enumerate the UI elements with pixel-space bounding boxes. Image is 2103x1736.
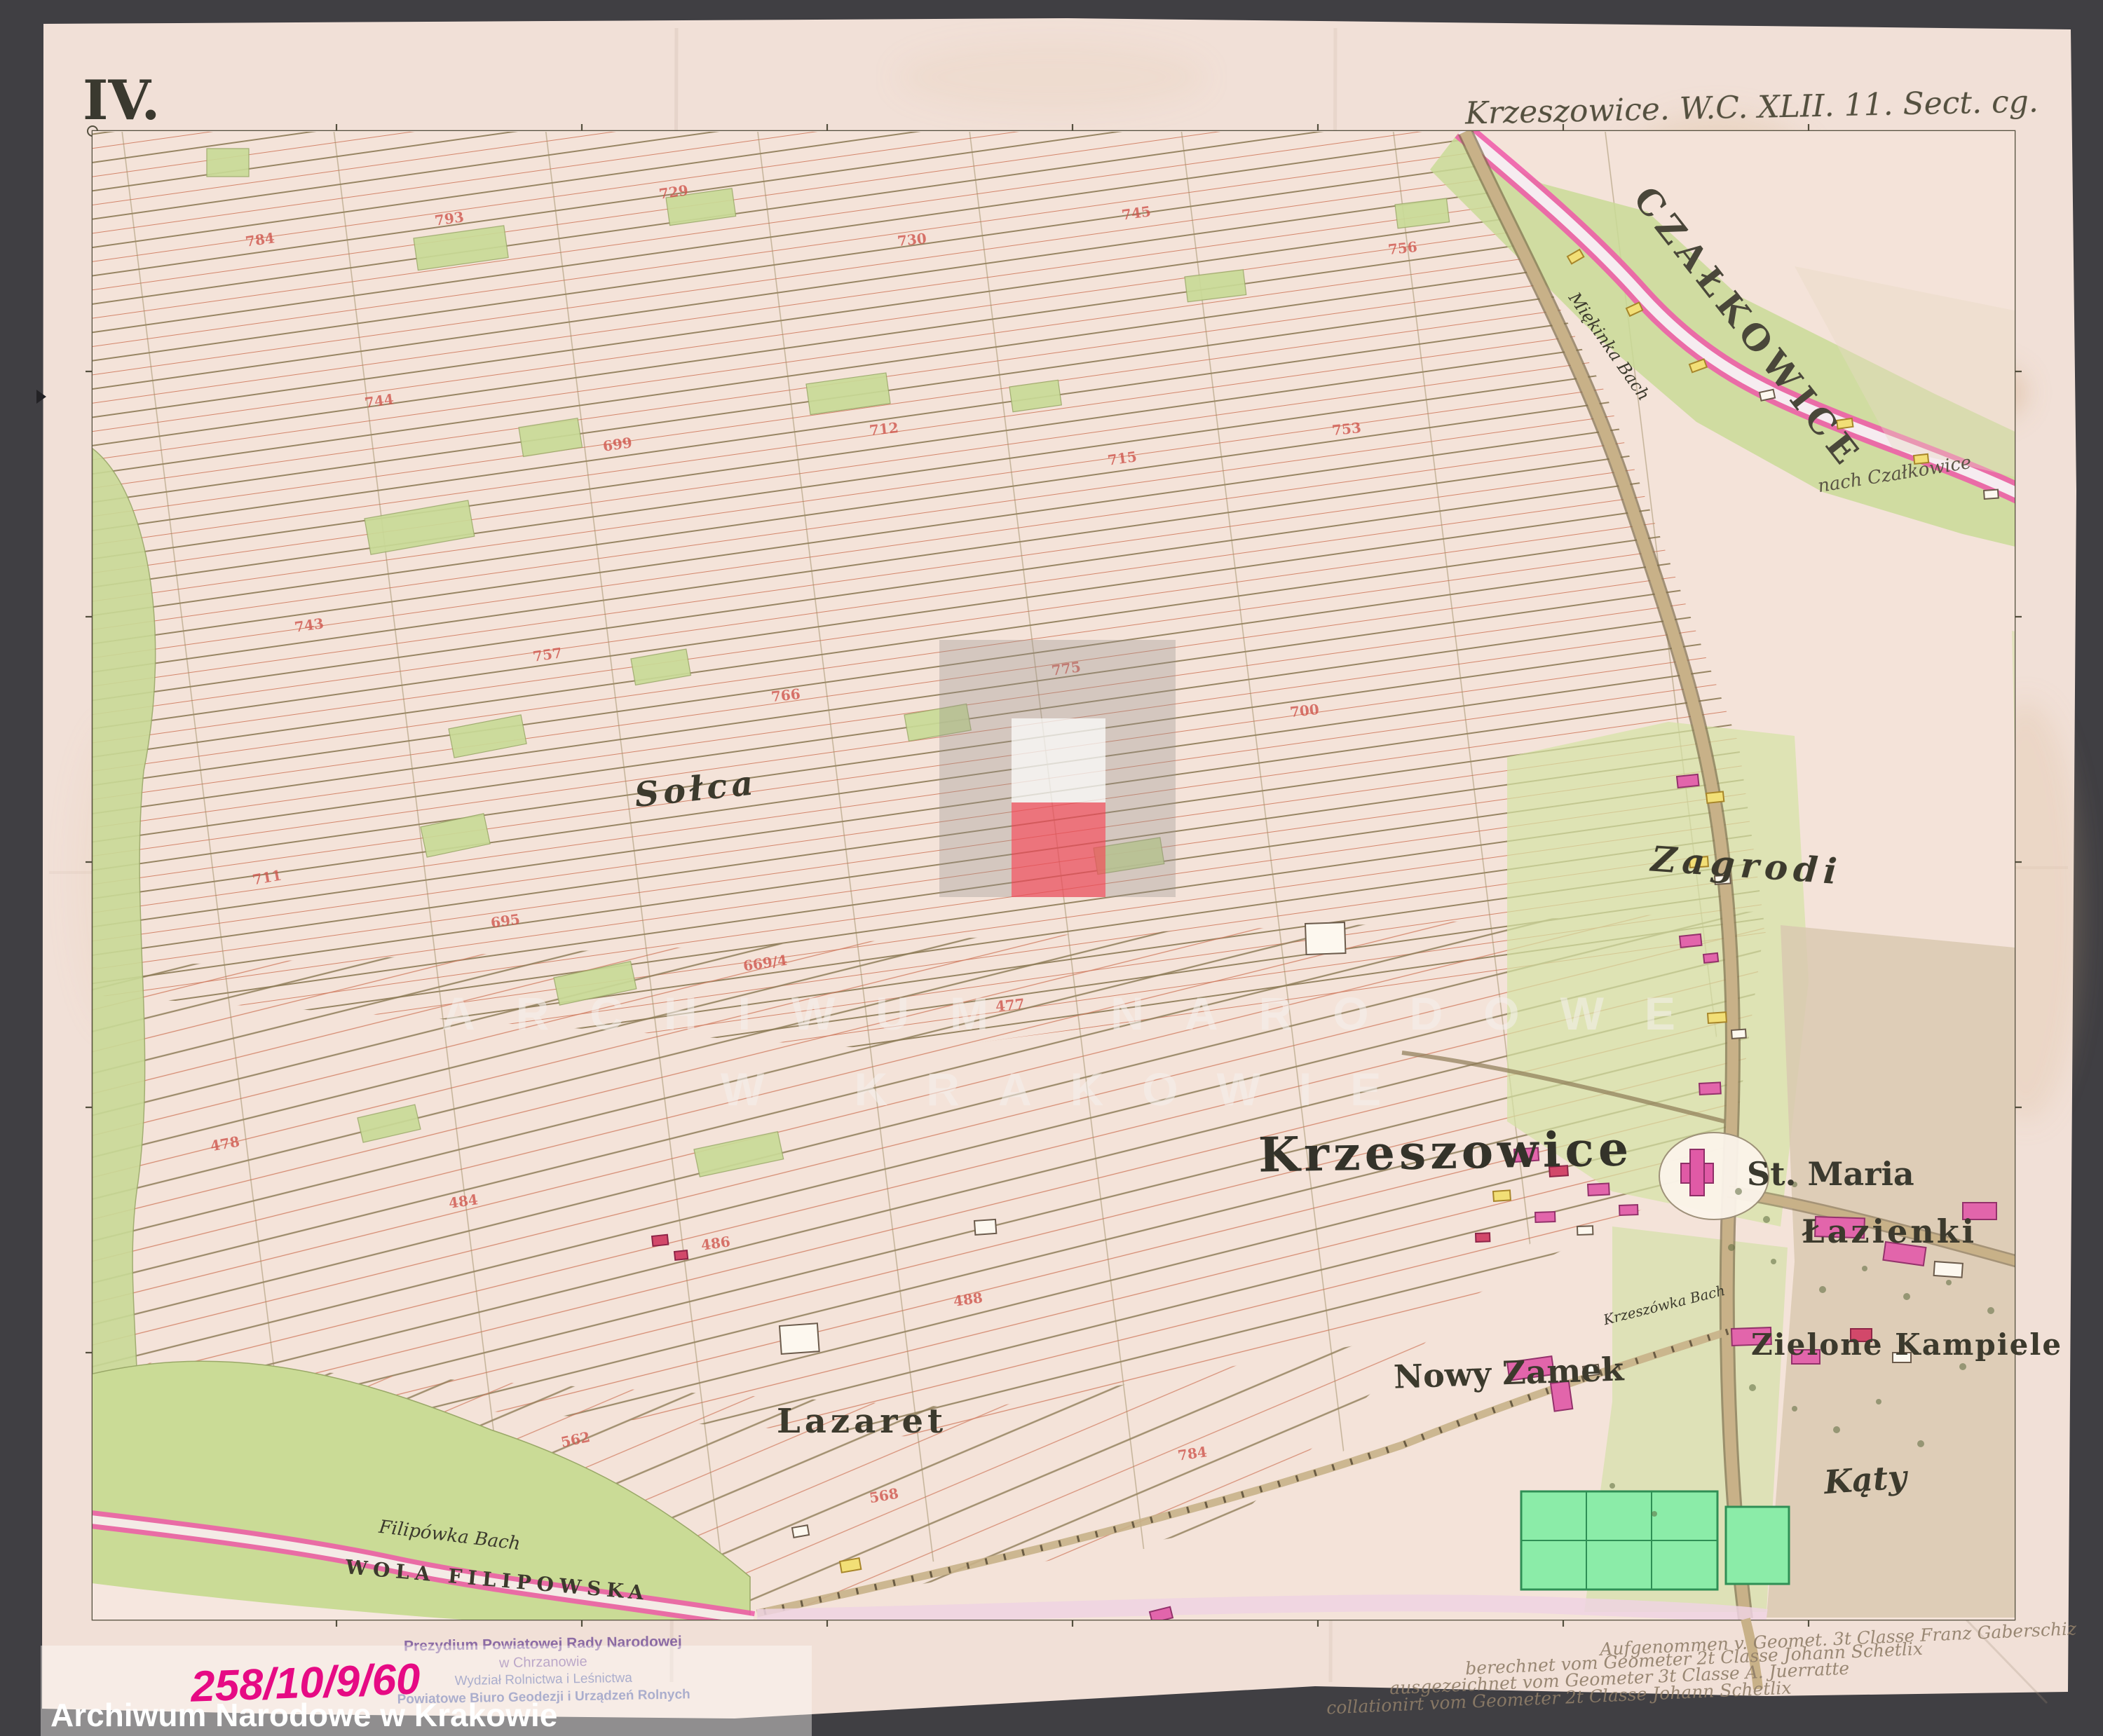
parcel-number: 712	[869, 419, 899, 439]
parcel-number: 568	[868, 1485, 899, 1507]
parcel-number: 478	[209, 1133, 240, 1155]
parcel-number: 715	[1107, 448, 1138, 469]
parcel-numbers-layer: 7847937297307457567446997127157537437577…	[0, 0, 2103, 1736]
archive-name: Archiwum Narodowe w Krakowie	[50, 1696, 557, 1734]
parcel-number: 745	[1121, 203, 1152, 224]
parcel-number: 669/4	[742, 952, 789, 975]
parcel-number: 729	[658, 182, 690, 203]
parcel-number: 711	[251, 867, 283, 889]
parcel-number: 784	[245, 229, 276, 250]
parcel-number: 695	[490, 910, 522, 931]
parcel-number: 775	[1051, 658, 1082, 679]
parcel-number: 486	[700, 1233, 732, 1254]
parcel-number: 562	[559, 1428, 592, 1451]
parcel-number: 766	[770, 685, 801, 705]
scanned-map-sheet: IV. Krzeszowice. W.C. XLII. 11. Sect. cg…	[0, 0, 2103, 1736]
parcel-number: 753	[1331, 419, 1362, 439]
parcel-number: 744	[364, 390, 395, 411]
watermark-text-line2: W KRAKOWIE	[721, 1062, 1420, 1116]
parcel-number: 784	[1177, 1443, 1209, 1464]
parcel-number: 730	[897, 230, 927, 250]
parcel-number: 484	[448, 1191, 479, 1212]
parcel-number: 699	[602, 434, 634, 455]
parcel-number: 488	[953, 1289, 984, 1310]
parcel-number: 756	[1387, 238, 1418, 258]
parcel-number: 743	[294, 615, 325, 636]
parcel-number: 700	[1289, 701, 1320, 720]
parcel-number: 793	[434, 208, 465, 229]
watermark-text-line1: ARCHIWUM NARODOWE	[442, 987, 1716, 1040]
parcel-number: 757	[532, 644, 564, 665]
